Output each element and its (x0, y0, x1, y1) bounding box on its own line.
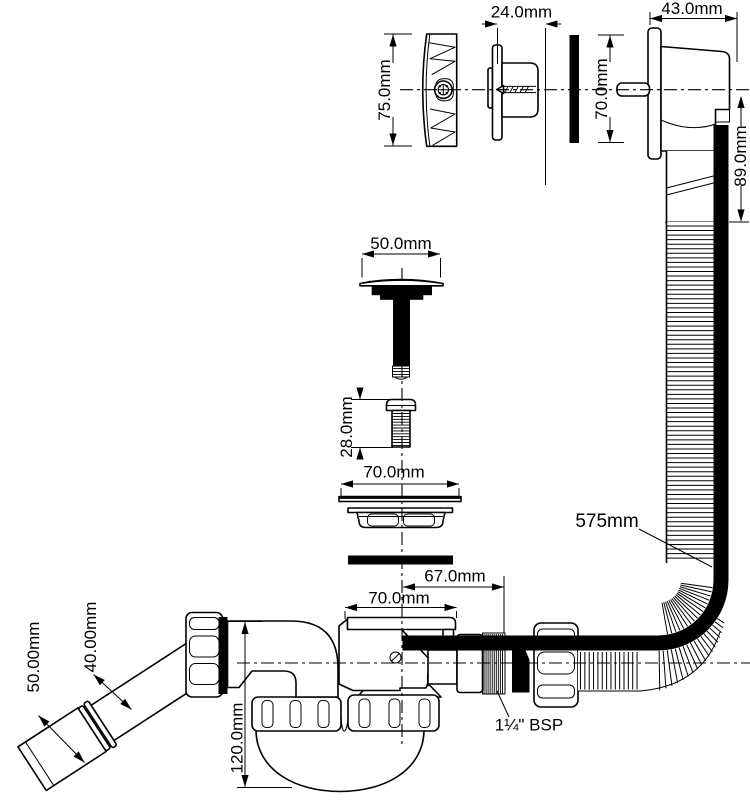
overflow-flange-body (488, 45, 538, 140)
compression-nut (186, 613, 223, 698)
inlet-washer (219, 617, 228, 694)
dim-label-67mm: 67.0mm (424, 567, 485, 586)
dim-label-70mm-flange: 70.0mm (363, 463, 424, 482)
housing-outlet-tube (665, 151, 714, 222)
dim-label-40mm-pipe: 40.00mm (81, 602, 100, 673)
outlet-tube (428, 650, 457, 684)
technical-drawing-page: 75.0mm 24.0mm 43.0mm 70.0mm 89.0mm 50.0m… (0, 0, 750, 800)
flexible-hose-vertical (662, 222, 714, 634)
waste-flange-strainer (339, 497, 461, 528)
dim-label-28mm: 28.0mm (337, 396, 356, 457)
label-hose-length: 575mm (575, 511, 638, 532)
dim-label-89mm: 89.0mm (731, 125, 750, 186)
dim-label-24mm: 24.0mm (491, 3, 552, 22)
trap-nut-right (348, 695, 439, 731)
wall-gasket-bar (570, 35, 580, 143)
dim-label-120mm: 120.0mm (228, 703, 247, 774)
dim-label-70mm-housing: 70.0mm (592, 58, 611, 119)
overflow-housing (617, 28, 730, 222)
plug-tip-threads (393, 369, 409, 375)
label-bsp-thread: 1¼" BSP (495, 716, 563, 735)
dim-label-75mm: 75.0mm (375, 59, 394, 120)
dim-label-43mm: 43.0mm (661, 0, 722, 18)
trap-nut-left (252, 697, 341, 731)
retaining-screw (387, 400, 416, 448)
dim-label-50mm: 50.0mm (370, 234, 431, 253)
plug-seal-and-stem (372, 286, 432, 366)
dim-label-70mm-trap: 70.0mm (368, 589, 429, 608)
dim-label-50mm-pipe: 50.00mm (24, 622, 43, 693)
bath-waste-overflow-diagram: 75.0mm 24.0mm 43.0mm 70.0mm 89.0mm 50.0m… (0, 0, 750, 800)
rubber-washer-bar (348, 556, 453, 565)
